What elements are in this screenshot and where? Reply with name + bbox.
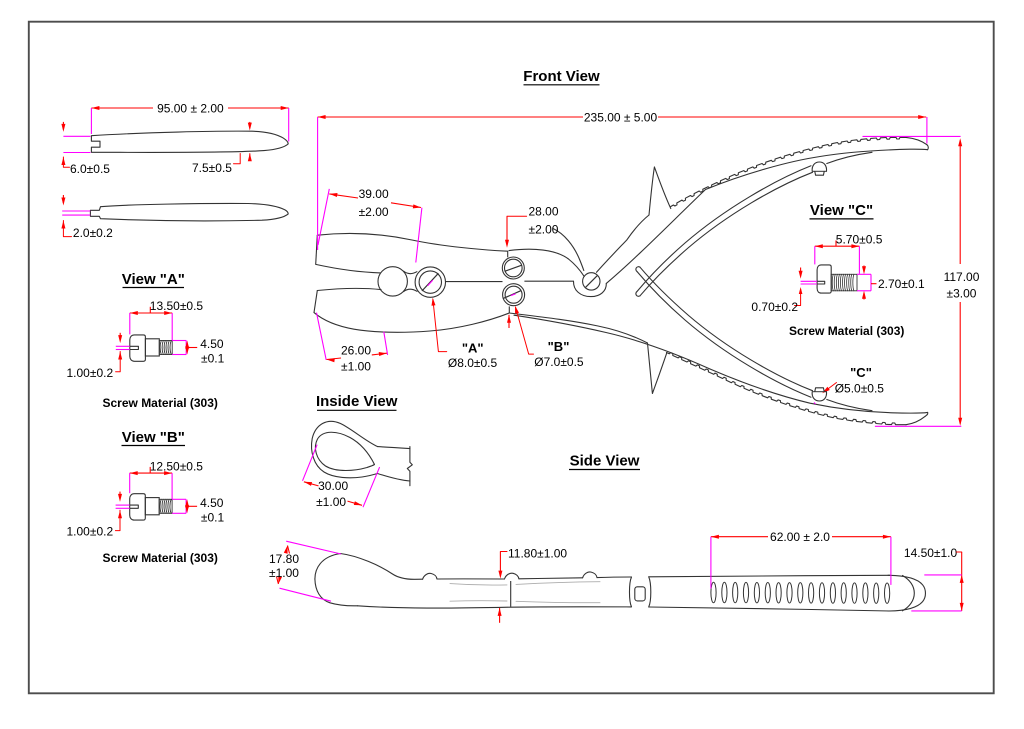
svg-text:±1.00: ±1.00 [269,566,299,580]
svg-text:7.5±0.5: 7.5±0.5 [192,161,232,175]
svg-text:View "C": View "C" [810,202,873,219]
svg-text:28.00: 28.00 [529,205,559,219]
svg-text:Side View: Side View [570,453,640,470]
svg-text:2.0±0.2: 2.0±0.2 [73,226,113,240]
svg-text:14.50±1.0: 14.50±1.0 [904,546,958,560]
svg-text:±1.00: ±1.00 [316,495,346,509]
svg-text:Ø5.0±0.5: Ø5.0±0.5 [835,382,885,396]
svg-text:±2.00: ±2.00 [359,205,389,219]
svg-text:±0.1: ±0.1 [201,352,225,366]
svg-text:±1.00: ±1.00 [341,360,371,374]
svg-text:View "A": View "A" [122,271,185,288]
svg-text:1.00±0.2: 1.00±0.2 [67,366,114,380]
svg-text:Screw Material (303): Screw Material (303) [103,551,218,565]
svg-text:5.70±0.5: 5.70±0.5 [836,233,883,247]
svg-text:0.70±0.2: 0.70±0.2 [751,300,798,314]
svg-text:±3.00: ±3.00 [947,287,977,301]
svg-text:View "B": View "B" [122,429,185,446]
svg-text:Ø8.0±0.5: Ø8.0±0.5 [448,356,498,370]
svg-text:117.00: 117.00 [944,270,980,284]
svg-text:"C": "C" [850,365,872,380]
svg-text:±0.1: ±0.1 [201,510,225,524]
svg-text:"B": "B" [548,339,570,354]
svg-text:62.00 ± 2.0: 62.00 ± 2.0 [770,530,830,544]
svg-text:12.50±0.5: 12.50±0.5 [150,459,204,473]
svg-text:39.00: 39.00 [359,187,389,201]
svg-text:4.50: 4.50 [200,496,224,510]
svg-text:17.80: 17.80 [269,552,299,566]
svg-text:2.70±0.1: 2.70±0.1 [878,277,925,291]
svg-text:Screw Material (303): Screw Material (303) [103,396,218,410]
svg-text:26.00: 26.00 [341,344,371,358]
svg-text:95.00 ± 2.00: 95.00 ± 2.00 [157,102,224,116]
svg-text:235.00 ± 5.00: 235.00 ± 5.00 [584,111,658,125]
svg-text:30.00: 30.00 [318,479,348,493]
svg-text:±2.00: ±2.00 [529,223,559,237]
svg-text:13.50±0.5: 13.50±0.5 [150,299,204,313]
svg-text:Front View: Front View [523,68,600,85]
svg-text:6.0±0.5: 6.0±0.5 [70,162,110,176]
svg-text:4.50: 4.50 [200,337,224,351]
svg-text:11.80±1.00: 11.80±1.00 [508,547,567,561]
svg-text:1.00±0.2: 1.00±0.2 [67,525,114,539]
svg-text:Inside View: Inside View [316,393,398,410]
svg-text:Screw Material (303): Screw Material (303) [789,324,904,338]
svg-text:Ø7.0±0.5: Ø7.0±0.5 [534,355,584,369]
svg-text:"A": "A" [462,341,484,356]
